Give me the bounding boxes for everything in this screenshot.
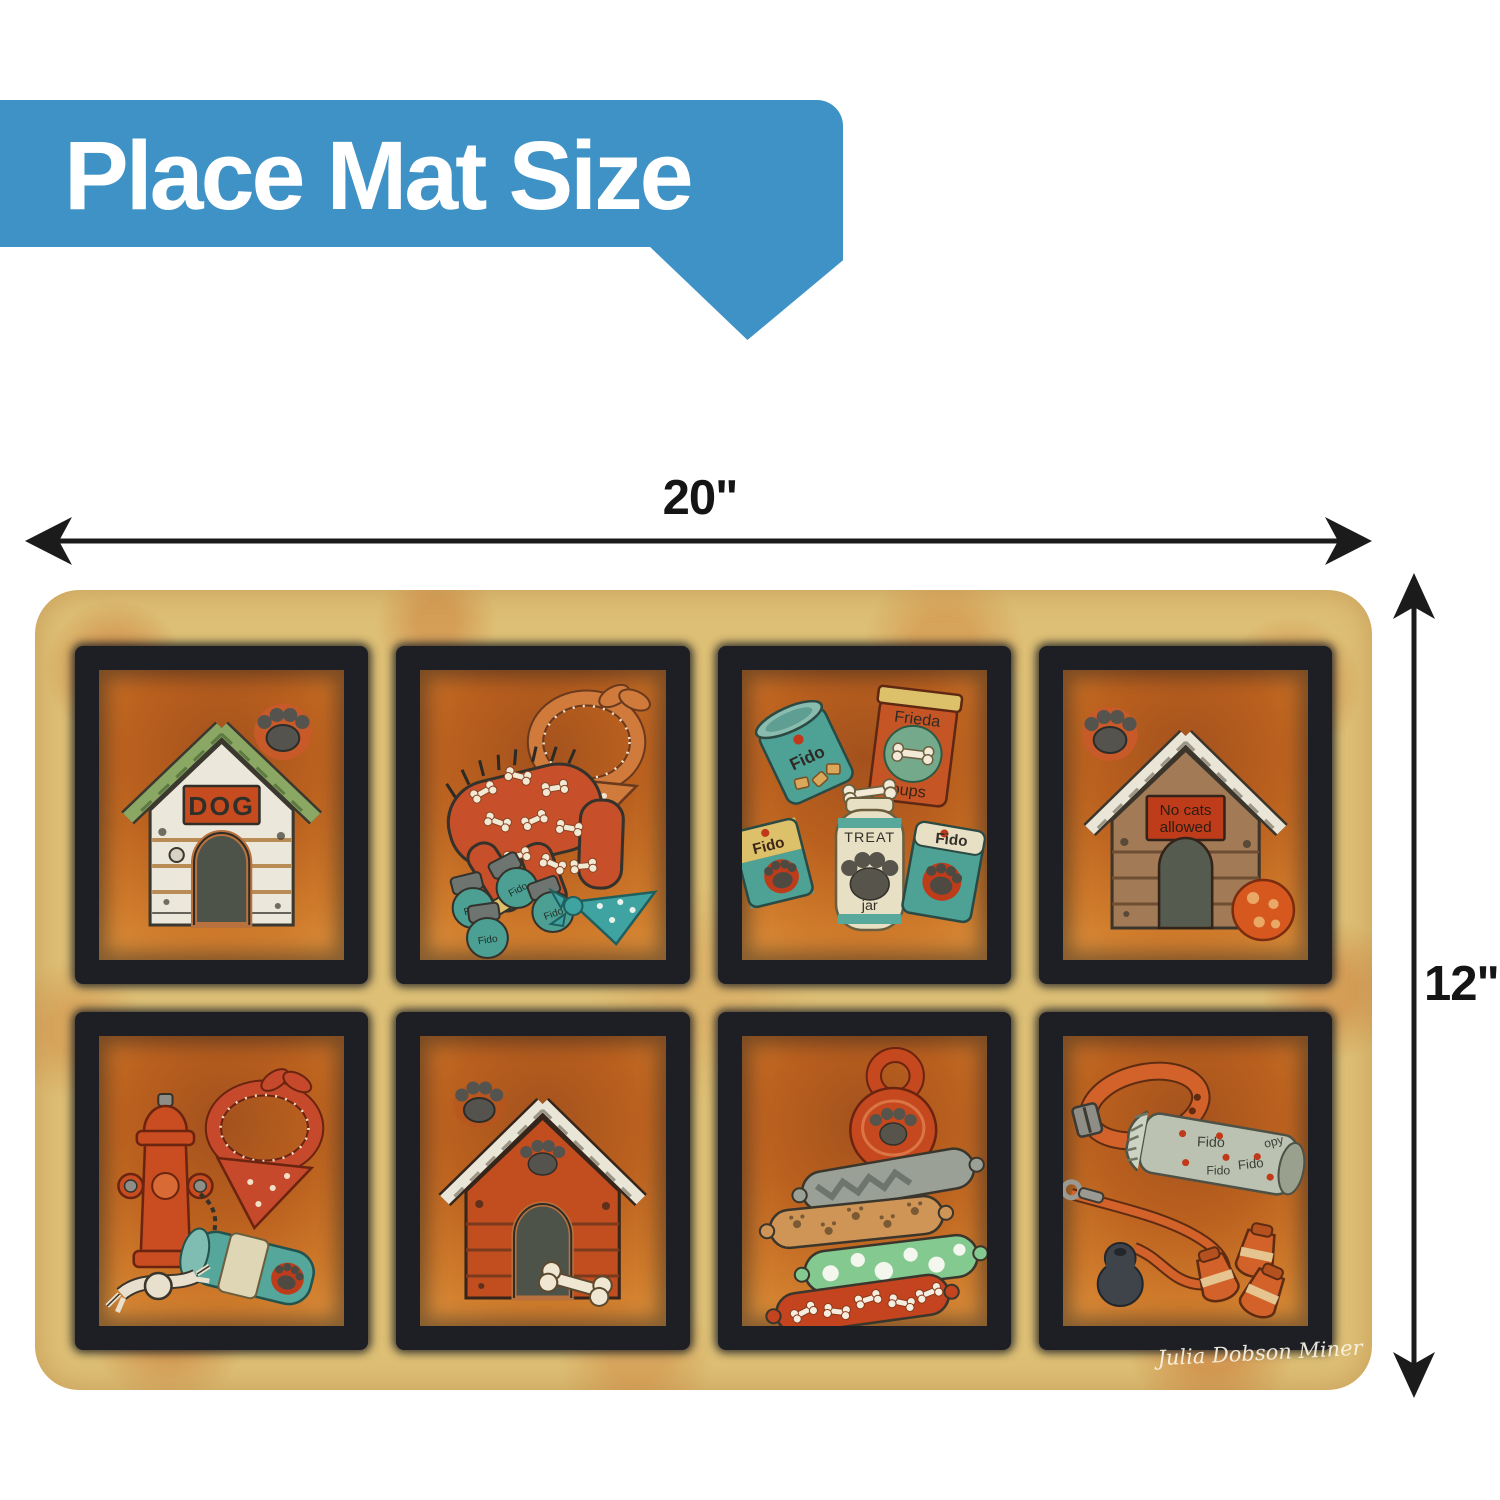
paw-print-icon — [453, 1082, 506, 1129]
fire-hydrant-illustration — [99, 1036, 344, 1326]
fido-can-2: Fido — [742, 817, 814, 908]
doghouse-door — [194, 833, 249, 925]
leash-collar-illustration: Fido Fido opy Fido — [1063, 1036, 1308, 1326]
doghouse-door — [1159, 838, 1212, 928]
fido-bag: Fido — [901, 821, 986, 923]
panel-no-cats-doghouse: No cats allowed — [1039, 646, 1332, 984]
svg-text:Fido: Fido — [1206, 1163, 1230, 1177]
treat-jar: TREAT jar — [836, 778, 903, 930]
paw-print-icon — [1082, 707, 1137, 761]
panel-dog-clothes: Fido Fido Fido — [396, 646, 689, 984]
no-cats-line2: allowed — [1159, 819, 1211, 836]
white-doghouse-illustration: DOG — [99, 670, 344, 960]
stuffed-toys-illustration — [742, 1036, 987, 1326]
panel-red-doghouse — [396, 1012, 689, 1350]
panel-leash-collar-paper: Fido Fido opy Fido — [1039, 1012, 1332, 1350]
banner-label: Place Mat Size — [0, 100, 843, 247]
mat-panel-grid: DOG — [75, 646, 1332, 1350]
red-bandana — [213, 1065, 315, 1228]
svg-text:Fido: Fido — [934, 830, 968, 850]
fido-can: Fido — [751, 694, 856, 807]
panel-fire-hydrant-toys — [75, 1012, 368, 1350]
panel-white-doghouse: DOG — [75, 646, 368, 984]
rope-toy — [107, 1266, 209, 1312]
product-size-diagram: Place Mat Size 20" 12" — [0, 0, 1500, 1500]
panel-dog-food: Fido Frieda — [718, 646, 1011, 984]
paw-print-icon — [254, 704, 311, 760]
orange-ball — [1232, 880, 1293, 940]
height-label: 12" — [1424, 956, 1499, 1012]
dog-sign-label: DOG — [188, 791, 255, 821]
no-cats-line1: No cats — [1159, 802, 1211, 819]
no-cats-doghouse-illustration: No cats allowed — [1063, 670, 1308, 960]
size-callout-banner-tail — [648, 245, 843, 340]
svg-text:TREAT: TREAT — [844, 829, 895, 845]
panel-stuffed-toys — [718, 1012, 1011, 1350]
dog-clothes-illustration: Fido Fido Fido — [420, 670, 665, 960]
red-doghouse-illustration — [420, 1036, 665, 1326]
dog-food-illustration: Fido Frieda — [742, 670, 987, 960]
fido-newspaper: Fido Fido opy Fido — [1122, 1107, 1308, 1199]
width-label: 20" — [560, 470, 840, 526]
teal-roll — [174, 1222, 319, 1312]
place-mat-image: DOG — [35, 590, 1372, 1390]
svg-text:jar: jar — [860, 897, 877, 913]
